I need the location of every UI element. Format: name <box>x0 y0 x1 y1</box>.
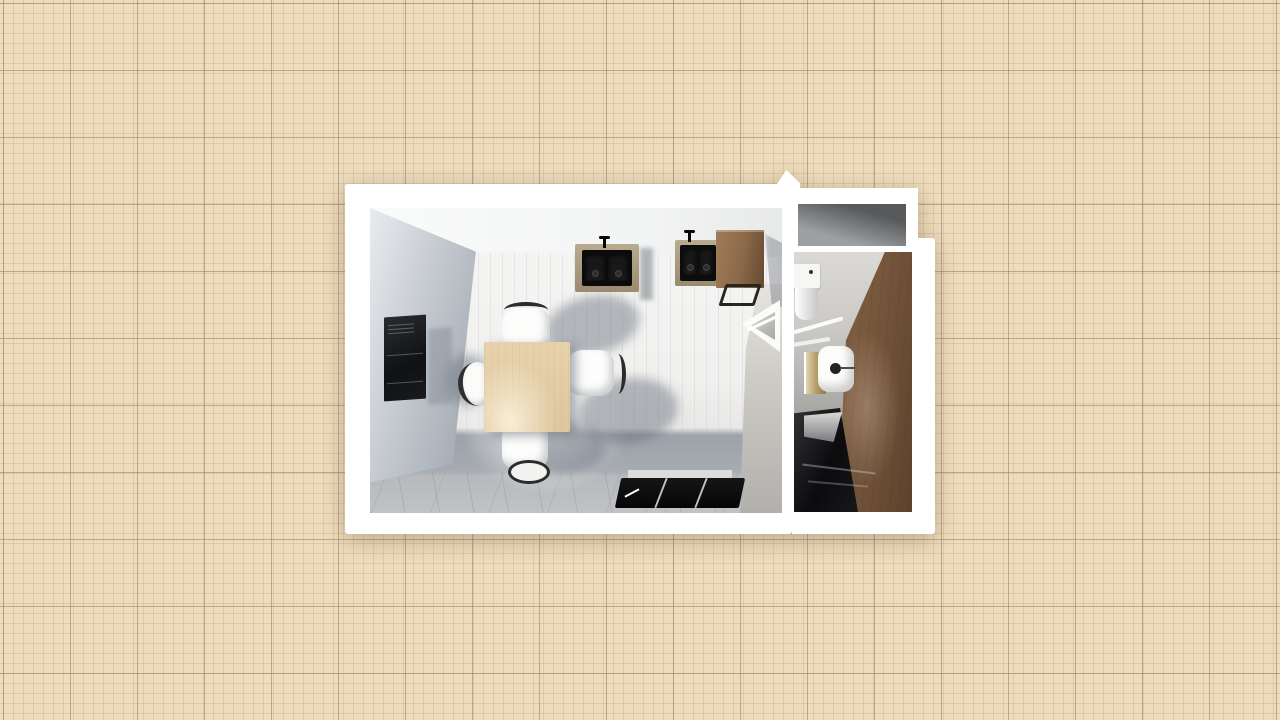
tv-shelf-line <box>387 381 423 385</box>
wall-sink-unit[interactable] <box>675 240 721 286</box>
tv-vent-line <box>388 327 414 330</box>
sink-basin-black <box>582 250 632 286</box>
floor-tv[interactable] <box>615 478 745 508</box>
drain-icon <box>703 264 710 271</box>
faucet-icon <box>688 232 691 242</box>
floor-tv-stand <box>628 470 732 478</box>
chair-armrest <box>610 354 626 394</box>
toilet-flush-handle <box>840 367 855 369</box>
sink-bowl <box>608 255 628 281</box>
tv-panel-shadow <box>428 327 452 405</box>
wooden-cabinet[interactable] <box>716 230 764 288</box>
storage-niche[interactable] <box>798 204 906 246</box>
toilet[interactable] <box>818 346 854 392</box>
towel-rail <box>794 337 830 347</box>
washbasin-pedestal <box>795 288 818 320</box>
tv-vent-line <box>388 323 414 326</box>
sink-bowl <box>699 249 713 275</box>
tv-shelf-line <box>387 353 423 357</box>
apartment-plan[interactable] <box>345 170 935 535</box>
floorplan-canvas[interactable] <box>0 0 1280 720</box>
double-sink-unit[interactable] <box>575 244 639 292</box>
tv-seam-line <box>694 478 707 508</box>
faucet-icon <box>599 236 610 239</box>
tv-vent-line <box>388 331 414 334</box>
dining-chair-east[interactable] <box>568 350 614 396</box>
faucet-icon <box>809 270 813 274</box>
drain-icon <box>615 270 622 277</box>
tv-seam-line <box>654 478 667 508</box>
wall-tv-panel[interactable] <box>384 315 426 402</box>
washbasin[interactable] <box>794 264 820 288</box>
sink-unit-shadow <box>640 248 653 300</box>
dining-table[interactable] <box>484 342 570 432</box>
living-dining-room[interactable] <box>370 208 782 513</box>
chair-footrest <box>508 460 550 484</box>
sink-bowl <box>683 249 697 275</box>
drain-icon <box>687 264 694 271</box>
sink-bowl <box>585 255 605 281</box>
faucet-icon <box>684 230 695 233</box>
chair-armrest <box>504 302 548 318</box>
bathroom[interactable] <box>794 252 912 512</box>
drain-icon <box>592 270 599 277</box>
sink-basin-black <box>680 245 716 281</box>
faucet-icon <box>603 238 606 248</box>
corner-shelf[interactable] <box>742 300 780 352</box>
outer-wall-right-step <box>918 238 935 534</box>
